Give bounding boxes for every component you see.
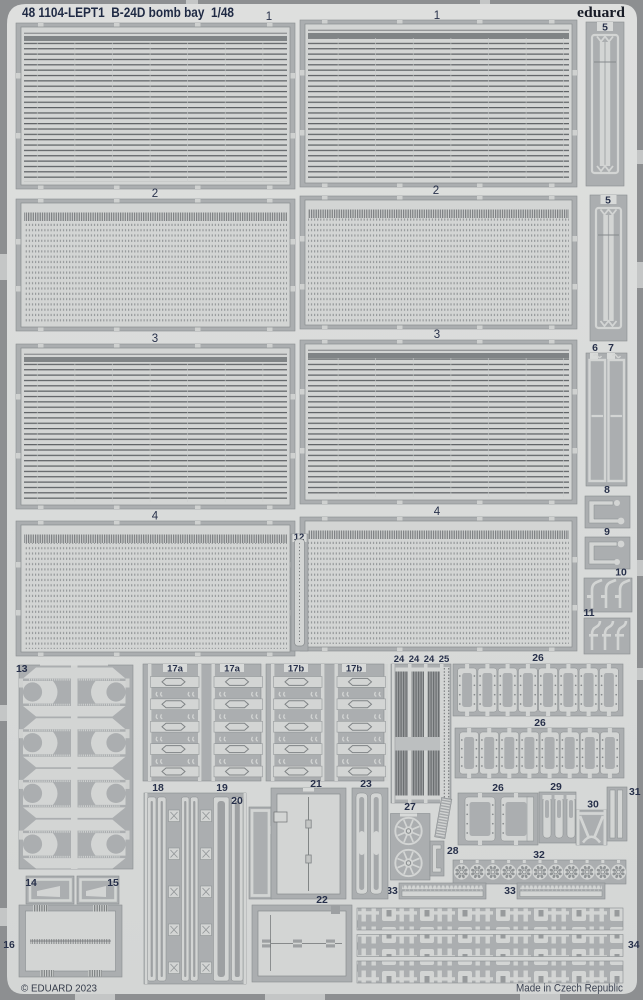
svg-text:2: 2 xyxy=(433,185,439,197)
svg-text:8: 8 xyxy=(604,485,610,496)
svg-text:5: 5 xyxy=(602,23,608,34)
svg-text:26: 26 xyxy=(492,783,504,794)
svg-text:31: 31 xyxy=(629,787,641,798)
svg-text:4: 4 xyxy=(434,506,441,518)
svg-text:5: 5 xyxy=(605,196,611,207)
svg-text:28: 28 xyxy=(447,846,459,857)
svg-text:9: 9 xyxy=(604,527,610,538)
svg-text:19: 19 xyxy=(216,783,228,794)
svg-text:17b: 17b xyxy=(288,664,305,675)
svg-text:20: 20 xyxy=(231,796,243,807)
svg-text:eduard: eduard xyxy=(577,4,626,21)
svg-text:14: 14 xyxy=(25,878,37,889)
svg-text:16: 16 xyxy=(3,940,15,951)
svg-text:22: 22 xyxy=(316,895,328,906)
svg-text:17a: 17a xyxy=(167,664,184,675)
svg-text:25: 25 xyxy=(439,654,450,665)
svg-text:17b: 17b xyxy=(346,664,363,675)
svg-text:26: 26 xyxy=(532,653,544,664)
svg-text:26: 26 xyxy=(534,718,546,729)
svg-text:13: 13 xyxy=(16,664,28,675)
svg-text:10: 10 xyxy=(615,568,627,579)
svg-text:Made in Czech Republic: Made in Czech Republic xyxy=(516,983,623,995)
svg-text:3: 3 xyxy=(152,333,158,345)
svg-text:24: 24 xyxy=(424,654,435,665)
svg-text:11: 11 xyxy=(584,608,595,619)
svg-text:48 1104-LEPT1 B-24D bomb bay: 48 1104-LEPT1 B-24D bomb bay 1/48 xyxy=(22,5,234,20)
svg-text:18: 18 xyxy=(152,783,164,794)
svg-text:29: 29 xyxy=(550,782,562,793)
svg-text:32: 32 xyxy=(533,850,545,861)
svg-text:2: 2 xyxy=(152,188,158,200)
svg-text:24: 24 xyxy=(394,654,405,665)
svg-text:33: 33 xyxy=(504,886,516,897)
svg-text:30: 30 xyxy=(587,800,599,811)
svg-text:© EDUARD 2023: © EDUARD 2023 xyxy=(21,983,97,995)
svg-text:34: 34 xyxy=(628,940,640,951)
svg-text:17a: 17a xyxy=(224,664,241,675)
svg-text:15: 15 xyxy=(107,878,119,889)
svg-text:27: 27 xyxy=(404,802,416,813)
svg-text:24: 24 xyxy=(409,654,420,665)
svg-text:1: 1 xyxy=(266,11,272,23)
svg-text:3: 3 xyxy=(434,329,440,341)
svg-text:7: 7 xyxy=(608,343,614,354)
svg-text:6: 6 xyxy=(592,343,598,354)
